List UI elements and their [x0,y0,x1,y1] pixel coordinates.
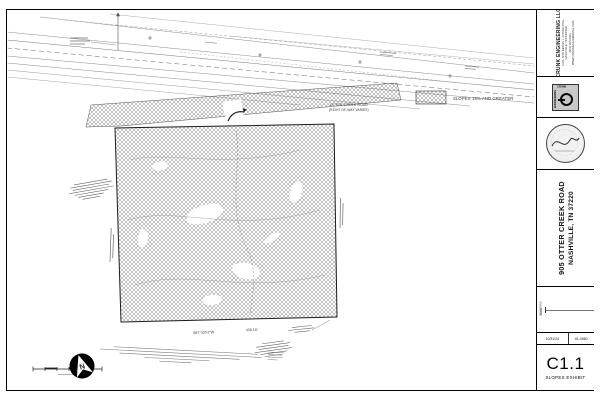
signature-scribble [552,138,579,146]
project-title-section: 905 OTTER CREEK ROAD NASHVILLE, TN 37220 [537,170,594,287]
sheet-title: SLOPES EXHIBIT [545,375,585,380]
project-address: 905 OTTER CREEK ROAD [557,181,566,275]
sheet-border [6,9,594,391]
logo-text-engineering: ENGINEERING [554,88,557,110]
firm-name: CRUNK ENGINEERING LLC [556,10,562,77]
revisions-table: REVISIONS DATE [537,287,594,333]
revisions-date-label: DATE [539,308,542,315]
engineer-seal [546,124,585,163]
logo-text-crunk: CRUNK [557,85,566,88]
job-number: 61-0660 [569,333,594,344]
engineer-seal-section [537,118,594,170]
power-c-icon [560,93,573,106]
revisions-header-column: REVISIONS DATE [537,307,546,313]
title-block: CRUNK ENGINEERING LLC CIVIL SITE DESIGN … [536,10,594,390]
plan-sheet: OTTER CREEK ROAD (RIGHT-OF-WAY VARIES) [0,0,600,401]
project-city: NASHVILLE, TN 37220 [568,181,575,275]
firm-line: WWW.CRUNKENGINEERING.COM [572,10,575,77]
sheet-number: C1.1 [547,355,585,373]
date-job-row: 10/31/24 61-0660 [537,333,594,345]
firm-info-section: CRUNK ENGINEERING LLC CIVIL SITE DESIGN … [537,10,594,77]
sheet-number-section: C1.1 SLOPES EXHIBIT [537,345,594,390]
firm-logo-section: ENGINEERING CRUNK [537,77,594,118]
firm-logo: ENGINEERING CRUNK [552,84,579,111]
issue-date: 10/31/24 [537,333,569,344]
